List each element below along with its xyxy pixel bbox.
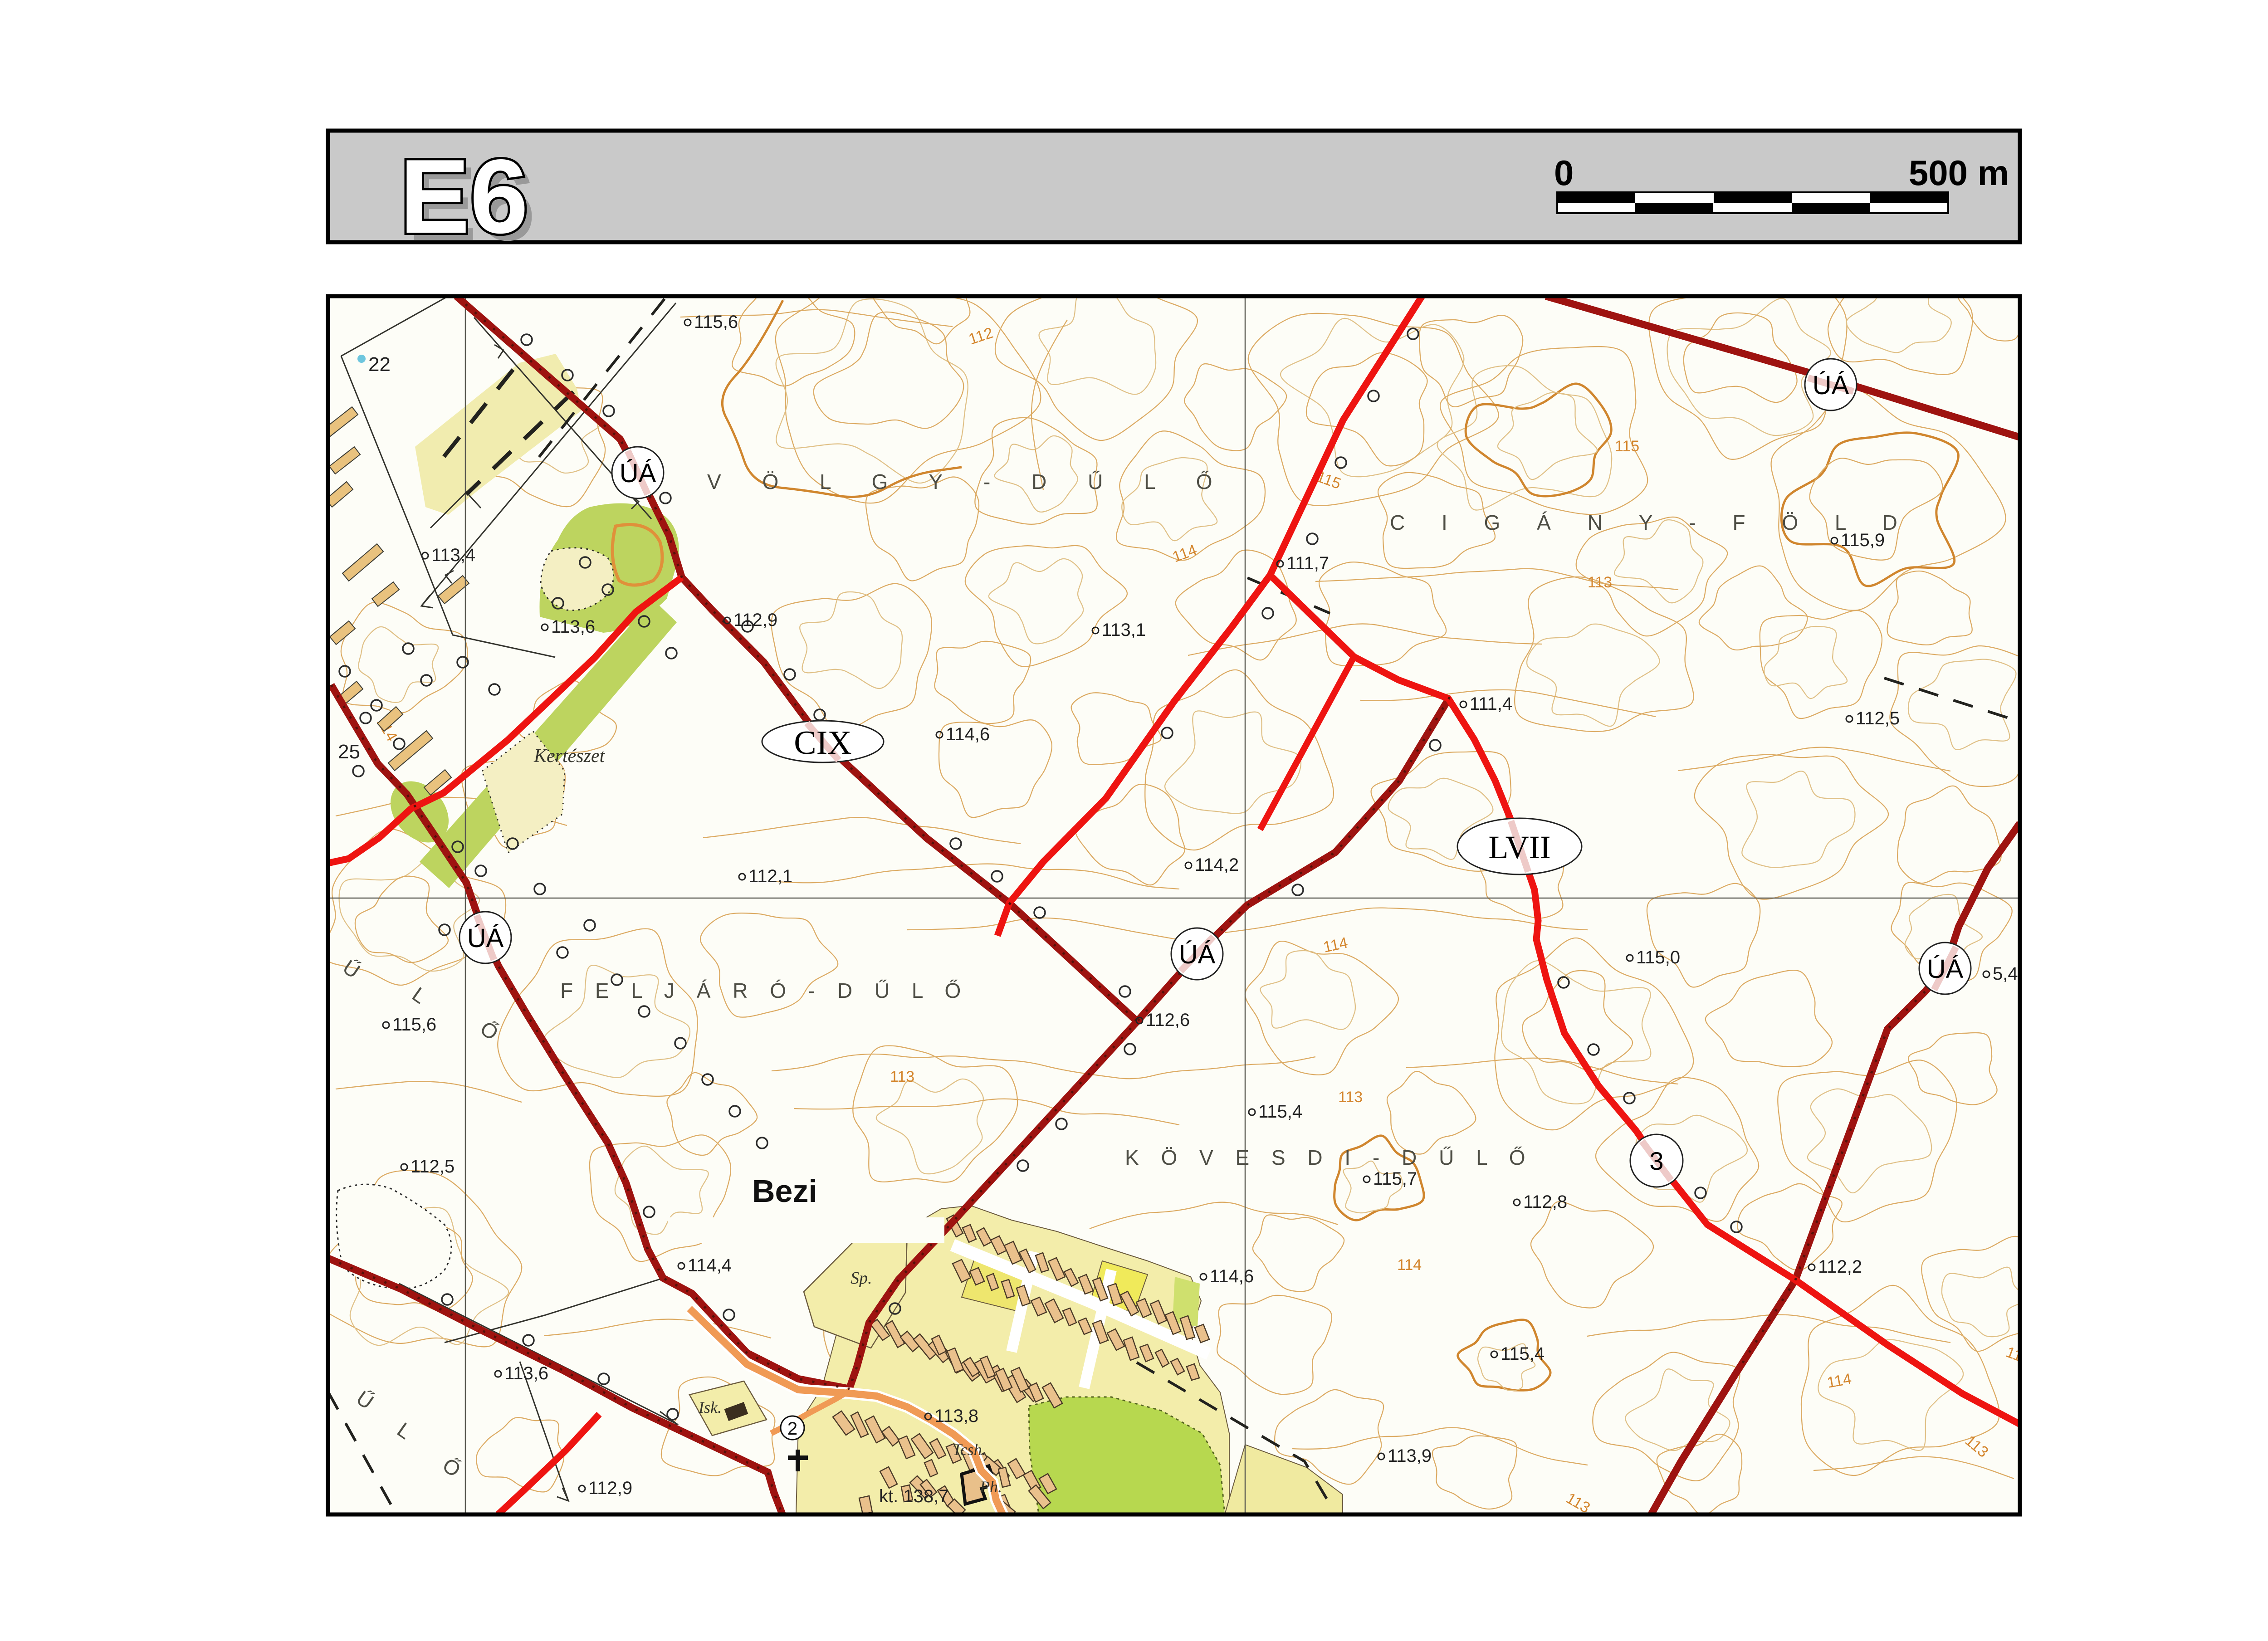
svg-text:114,4: 114,4 xyxy=(688,1255,732,1275)
svg-text:ÚÁ: ÚÁ xyxy=(1813,371,1849,400)
svg-text:CIX: CIX xyxy=(794,724,851,762)
svg-text:115,4: 115,4 xyxy=(1258,1102,1302,1122)
svg-text:113,9: 113,9 xyxy=(1388,1446,1432,1466)
svg-text:E6: E6 xyxy=(400,138,528,255)
svg-text:0: 0 xyxy=(1554,153,1574,193)
svg-text:kt. 138,7: kt. 138,7 xyxy=(879,1486,948,1506)
svg-text:LVII: LVII xyxy=(1488,829,1550,865)
svg-text:113,6: 113,6 xyxy=(551,617,595,637)
svg-text:114: 114 xyxy=(1397,1256,1422,1274)
svg-text:114,6: 114,6 xyxy=(1210,1266,1254,1286)
svg-text:500 m: 500 m xyxy=(1909,153,2009,193)
svg-text:3: 3 xyxy=(1649,1147,1663,1175)
svg-text:112,5: 112,5 xyxy=(411,1157,455,1177)
svg-text:Tcsh.: Tcsh. xyxy=(953,1441,986,1459)
svg-text:115,7: 115,7 xyxy=(1373,1169,1417,1189)
svg-text:115,6: 115,6 xyxy=(694,312,738,332)
svg-text:C I G Á N Y - F Ö L D: C I G Á N Y - F Ö L D xyxy=(1390,511,1913,534)
svg-text:5,4: 5,4 xyxy=(1993,964,2018,984)
svg-text:2: 2 xyxy=(787,1419,797,1439)
svg-text:V Ö L G Y - D Ű L Ő: V Ö L G Y - D Ű L Ő xyxy=(707,470,1230,493)
svg-text:Sp.: Sp. xyxy=(850,1269,872,1288)
svg-text:Ph.: Ph. xyxy=(979,1478,1002,1496)
svg-text:114,2: 114,2 xyxy=(1195,855,1239,875)
svg-text:Kertészet: Kertészet xyxy=(533,746,606,767)
svg-text:114,6: 114,6 xyxy=(946,724,990,744)
svg-text:ÚÁ: ÚÁ xyxy=(1179,940,1216,969)
svg-text:112,1: 112,1 xyxy=(748,866,792,886)
svg-text:115,4: 115,4 xyxy=(1501,1344,1545,1364)
svg-text:112,6: 112,6 xyxy=(1146,1010,1190,1030)
svg-text:25: 25 xyxy=(338,741,360,763)
svg-text:111,7: 111,7 xyxy=(1286,553,1329,573)
svg-text:Isk.: Isk. xyxy=(698,1398,722,1416)
svg-text:K Ö V E S D I - D Ű L Ő: K Ö V E S D I - D Ű L Ő xyxy=(1125,1146,1534,1169)
svg-text:F E L J Á R Ó - D Ű L Ő: F E L J Á R Ó - D Ű L Ő xyxy=(560,979,969,1002)
svg-text:113: 113 xyxy=(1588,574,1612,591)
svg-text:112,9: 112,9 xyxy=(588,1478,632,1498)
svg-text:113,8: 113,8 xyxy=(934,1406,978,1426)
svg-text:112,8: 112,8 xyxy=(1523,1192,1567,1212)
svg-text:113,4: 113,4 xyxy=(431,545,475,565)
svg-text:22: 22 xyxy=(368,353,391,376)
svg-text:Bezi: Bezi xyxy=(752,1173,817,1209)
svg-text:113,1: 113,1 xyxy=(1102,620,1146,640)
svg-text:113: 113 xyxy=(1338,1089,1363,1106)
svg-text:ÚÁ: ÚÁ xyxy=(467,923,504,953)
svg-text:115: 115 xyxy=(1615,438,1639,455)
svg-text:113: 113 xyxy=(890,1068,914,1085)
svg-text:112,2: 112,2 xyxy=(1818,1257,1862,1277)
svg-text:ÚÁ: ÚÁ xyxy=(620,459,656,488)
svg-text:112,9: 112,9 xyxy=(733,610,777,630)
svg-text:115,0: 115,0 xyxy=(1636,947,1680,967)
svg-text:111,4: 111,4 xyxy=(1470,694,1512,714)
svg-text:113,6: 113,6 xyxy=(504,1363,548,1383)
svg-text:115,6: 115,6 xyxy=(392,1015,436,1035)
svg-text:ÚÁ: ÚÁ xyxy=(1927,954,1964,984)
svg-text:112,5: 112,5 xyxy=(1856,708,1900,728)
